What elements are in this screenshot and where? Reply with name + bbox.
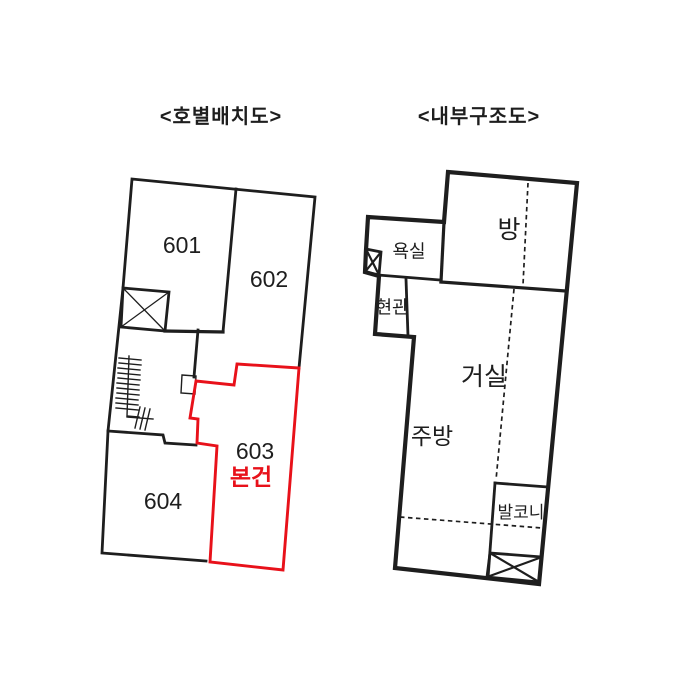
stair-step [116, 398, 138, 400]
stair-step [117, 393, 139, 395]
internal-structure-diagram: <내부구조도> [365, 105, 577, 584]
corner-shaft-icon [487, 553, 542, 582]
floor-plan-svg: <호별배치도> [0, 0, 700, 677]
elevator-shaft-icon [121, 288, 169, 331]
wall-balcony-top [495, 483, 548, 487]
unit-layout-title: <호별배치도> [160, 105, 282, 128]
internal-structure-title: <내부구조도> [418, 105, 540, 128]
corner-shaft-x-2 [487, 557, 542, 577]
room-living-label: 거실 [461, 363, 507, 391]
stair-step [119, 358, 141, 360]
stair-step [118, 368, 140, 370]
subject-property-label: 본건 [230, 464, 272, 490]
room-entrance-label: 현관 [375, 297, 408, 317]
unit-603-label: 603 [236, 438, 274, 464]
room-kitchen-label: 주방 [411, 423, 453, 449]
stair-step [116, 408, 138, 410]
wall-604-top [108, 431, 196, 445]
wall-corridor [194, 330, 198, 377]
stair-step [117, 388, 139, 390]
wall-601-602-divider [223, 189, 236, 332]
unit-layout-diagram: <호별배치도> [102, 105, 315, 570]
staircase-icon [116, 356, 153, 430]
unit-604-label: 604 [144, 488, 183, 514]
room-balcony-label: 발코니 [498, 503, 545, 522]
stair-landing-line [127, 417, 153, 419]
stair-step [116, 403, 138, 405]
stair-step [118, 378, 140, 380]
stair-step [119, 363, 141, 365]
stair-step [117, 383, 139, 385]
room-bathroom-label: 욕실 [392, 241, 425, 261]
dashed-line-bedroom [523, 183, 528, 285]
unit-601-label: 601 [163, 232, 201, 258]
stair-step [118, 373, 140, 375]
floor-plan-document: <호별배치도> [0, 0, 700, 677]
room-bedroom-label: 방 [497, 216, 520, 244]
elevator-x-diagonal-2 [121, 292, 169, 327]
wall-bedroom-bottom [441, 282, 566, 291]
wall-bedroom-left [441, 222, 444, 282]
wall-bathroom-bottom [378, 275, 440, 280]
stair-hatch [145, 409, 150, 430]
wall-601-bottom [165, 331, 223, 332]
unit-602-label: 602 [250, 266, 288, 292]
